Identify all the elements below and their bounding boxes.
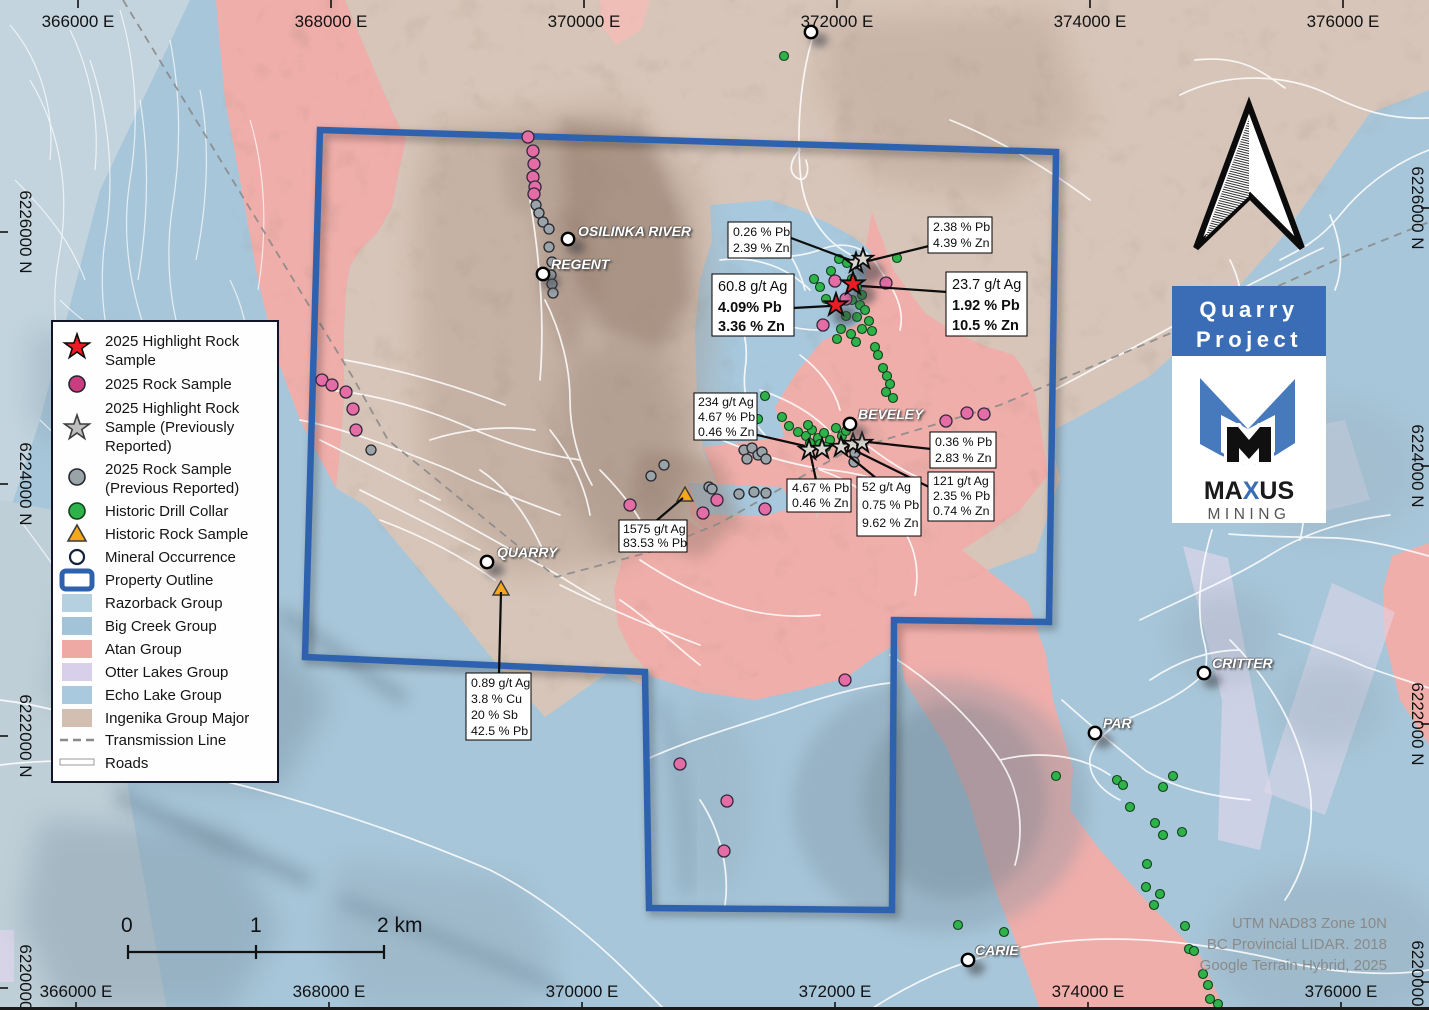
svg-text:368000 E: 368000 E bbox=[293, 982, 366, 1001]
svg-text:366000 E: 366000 E bbox=[40, 982, 113, 1001]
svg-text:2025 Highlight Rock: 2025 Highlight Rock bbox=[105, 400, 240, 417]
svg-text:83.53 % Pb: 83.53 % Pb bbox=[623, 536, 687, 550]
svg-text:Historic Drill Collar: Historic Drill Collar bbox=[105, 503, 228, 520]
svg-text:Project: Project bbox=[1196, 327, 1302, 352]
svg-text:QUARRY: QUARRY bbox=[497, 544, 559, 560]
svg-text:366000 E: 366000 E bbox=[42, 12, 115, 31]
svg-text:(Previous Reported): (Previous Reported) bbox=[105, 480, 239, 497]
svg-text:6226000 N: 6226000 N bbox=[16, 190, 35, 273]
svg-text:6220000 N: 6220000 N bbox=[1408, 940, 1427, 1010]
svg-text:2 km: 2 km bbox=[377, 914, 423, 937]
svg-text:0.46 % Zn: 0.46 % Zn bbox=[698, 425, 755, 439]
svg-text:2.39 % Zn: 2.39 % Zn bbox=[733, 241, 790, 255]
svg-text:6224000 N: 6224000 N bbox=[1408, 424, 1427, 507]
svg-text:372000 E: 372000 E bbox=[801, 12, 874, 31]
svg-text:REGENT: REGENT bbox=[551, 256, 611, 272]
svg-text:2025 Highlight Rock: 2025 Highlight Rock bbox=[105, 333, 240, 350]
svg-text:6222000 N: 6222000 N bbox=[1408, 682, 1427, 765]
svg-text:Razorback Group: Razorback Group bbox=[105, 595, 223, 612]
svg-text:2025 Rock Sample: 2025 Rock Sample bbox=[105, 376, 232, 393]
svg-text:Historic Rock Sample: Historic Rock Sample bbox=[105, 526, 248, 543]
svg-text:0.46 % Zn: 0.46 % Zn bbox=[792, 496, 849, 510]
svg-text:6222000 N: 6222000 N bbox=[16, 694, 35, 777]
svg-text:Roads: Roads bbox=[105, 755, 148, 772]
svg-text:Otter Lakes Group: Otter Lakes Group bbox=[105, 664, 228, 681]
svg-text:23.7 g/t Ag: 23.7 g/t Ag bbox=[952, 277, 1021, 293]
svg-text:4.09% Pb: 4.09% Pb bbox=[718, 300, 782, 316]
svg-text:6224000 N: 6224000 N bbox=[16, 442, 35, 525]
svg-text:Sample (Previously: Sample (Previously bbox=[105, 419, 235, 436]
svg-text:376000 E: 376000 E bbox=[1305, 982, 1378, 1001]
svg-text:4.67 % Pb: 4.67 % Pb bbox=[698, 410, 755, 424]
svg-text:0.36 % Pb: 0.36 % Pb bbox=[935, 435, 992, 449]
svg-text:9.62 % Zn: 9.62 % Zn bbox=[862, 516, 919, 530]
svg-text:1575 g/t Ag: 1575 g/t Ag bbox=[623, 522, 686, 536]
svg-text:368000 E: 368000 E bbox=[295, 12, 368, 31]
svg-text:4.39 % Zn: 4.39 % Zn bbox=[933, 236, 990, 250]
svg-text:Big Creek Group: Big Creek Group bbox=[105, 618, 217, 635]
svg-text:0.89 g/t Ag: 0.89 g/t Ag bbox=[471, 676, 530, 690]
svg-text:374000 E: 374000 E bbox=[1052, 982, 1125, 1001]
svg-text:121 g/t Ag: 121 g/t Ag bbox=[933, 474, 989, 488]
svg-text:Quarry: Quarry bbox=[1199, 297, 1298, 322]
svg-text:2.83 % Zn: 2.83 % Zn bbox=[935, 451, 992, 465]
svg-text:UTM NAD83 Zone 10N: UTM NAD83 Zone 10N bbox=[1232, 915, 1387, 932]
svg-text:4.67 % Pb: 4.67 % Pb bbox=[792, 481, 849, 495]
svg-text:2025 Rock Sample: 2025 Rock Sample bbox=[105, 461, 232, 478]
svg-text:PAR: PAR bbox=[1103, 715, 1132, 731]
svg-text:Google Terrain Hybrid, 2025: Google Terrain Hybrid, 2025 bbox=[1200, 957, 1387, 974]
svg-text:374000 E: 374000 E bbox=[1054, 12, 1127, 31]
svg-text:1: 1 bbox=[250, 914, 262, 937]
svg-text:6220000 N: 6220000 N bbox=[16, 944, 35, 1010]
svg-text:10.5 % Zn: 10.5 % Zn bbox=[952, 318, 1019, 334]
svg-text:Reported): Reported) bbox=[105, 438, 172, 455]
svg-text:1.92 % Pb: 1.92 % Pb bbox=[952, 298, 1020, 314]
svg-text:BC Provincial LIDAR. 2018: BC Provincial LIDAR. 2018 bbox=[1207, 936, 1387, 953]
svg-text:370000 E: 370000 E bbox=[548, 12, 621, 31]
svg-text:370000 E: 370000 E bbox=[546, 982, 619, 1001]
svg-text:376000 E: 376000 E bbox=[1307, 12, 1380, 31]
svg-text:Mineral Occurrence: Mineral Occurrence bbox=[105, 549, 236, 566]
svg-text:372000 E: 372000 E bbox=[799, 982, 872, 1001]
svg-text:MAXUS: MAXUS bbox=[1204, 477, 1294, 505]
svg-text:2.38 % Pb: 2.38 % Pb bbox=[933, 220, 990, 234]
svg-text:60.8 g/t Ag: 60.8 g/t Ag bbox=[718, 279, 787, 295]
svg-text:BEVELEY: BEVELEY bbox=[858, 406, 925, 422]
svg-text:OSILINKA RIVER: OSILINKA RIVER bbox=[578, 223, 692, 239]
svg-text:CRITTER: CRITTER bbox=[1212, 655, 1274, 671]
svg-text:0.75 % Pb: 0.75 % Pb bbox=[862, 498, 919, 512]
svg-text:CARIE: CARIE bbox=[975, 942, 1019, 958]
svg-text:Echo Lake Group: Echo Lake Group bbox=[105, 687, 222, 704]
svg-text:Transmission Line: Transmission Line bbox=[105, 732, 226, 749]
svg-text:0.26 % Pb: 0.26 % Pb bbox=[733, 225, 790, 239]
svg-text:0: 0 bbox=[121, 914, 133, 937]
svg-text:0.74 % Zn: 0.74 % Zn bbox=[933, 504, 990, 518]
svg-text:3.36 % Zn: 3.36 % Zn bbox=[718, 319, 785, 335]
svg-text:Atan Group: Atan Group bbox=[105, 641, 182, 658]
svg-text:2.35 % Pb: 2.35 % Pb bbox=[933, 489, 990, 503]
svg-text:6226000 N: 6226000 N bbox=[1408, 166, 1427, 249]
svg-text:Property Outline: Property Outline bbox=[105, 572, 213, 589]
svg-text:42.5 % Pb: 42.5 % Pb bbox=[471, 724, 528, 738]
svg-text:52 g/t Ag: 52 g/t Ag bbox=[862, 480, 911, 494]
svg-text:Ingenika Group Major: Ingenika Group Major bbox=[105, 710, 249, 727]
svg-text:20 % Sb: 20 % Sb bbox=[471, 708, 518, 722]
svg-text:3.8 % Cu: 3.8 % Cu bbox=[471, 692, 522, 706]
svg-text:234 g/t Ag: 234 g/t Ag bbox=[698, 395, 754, 409]
svg-text:MINING: MINING bbox=[1208, 506, 1291, 523]
svg-text:Sample: Sample bbox=[105, 352, 156, 369]
